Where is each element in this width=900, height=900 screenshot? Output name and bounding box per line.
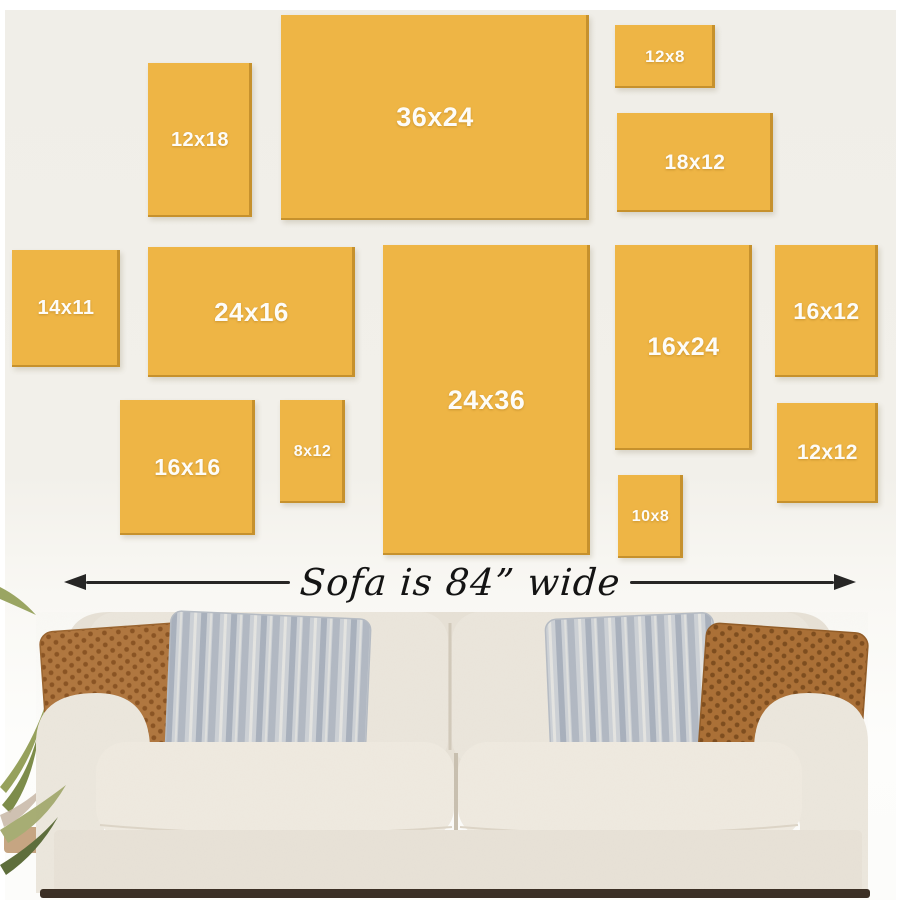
size-frame-14x11: 14x11 <box>12 250 120 367</box>
frame-size-label: 16x24 <box>647 333 719 362</box>
frame-size-label: 14x11 <box>37 297 94 320</box>
size-frame-12x18: 12x18 <box>148 63 252 217</box>
fabric-texture <box>36 612 868 893</box>
frame-size-label: 24x16 <box>214 297 289 328</box>
size-frame-36x24: 36x24 <box>281 15 589 220</box>
size-frame-8x12: 8x12 <box>280 400 345 503</box>
frame-size-label: 12x8 <box>645 47 685 67</box>
size-frame-24x36: 24x36 <box>383 245 590 555</box>
size-frame-10x8: 10x8 <box>618 475 683 558</box>
size-frame-12x12: 12x12 <box>777 403 878 503</box>
sofa-scene <box>0 575 900 900</box>
frame-size-label: 16x12 <box>793 298 859 325</box>
frame-size-label: 16x16 <box>154 454 220 481</box>
size-guide-image: 12x18 36x24 12x8 18x12 14x11 24x16 24x36… <box>0 0 900 900</box>
frame-size-label: 36x24 <box>396 102 474 133</box>
size-frame-18x12: 18x12 <box>617 113 773 212</box>
size-frame-16x16: 16x16 <box>120 400 255 535</box>
frame-size-label: 12x18 <box>171 129 229 152</box>
size-frame-24x16: 24x16 <box>148 247 355 377</box>
size-frame-12x8: 12x8 <box>615 25 715 88</box>
frame-size-label: 8x12 <box>294 443 332 461</box>
frame-size-label: 10x8 <box>632 508 670 526</box>
size-frame-16x12: 16x12 <box>775 245 878 377</box>
frame-size-label: 12x12 <box>797 441 858 465</box>
frame-size-label: 24x36 <box>448 385 526 416</box>
size-frame-16x24: 16x24 <box>615 245 752 450</box>
frame-size-label: 18x12 <box>665 151 726 175</box>
